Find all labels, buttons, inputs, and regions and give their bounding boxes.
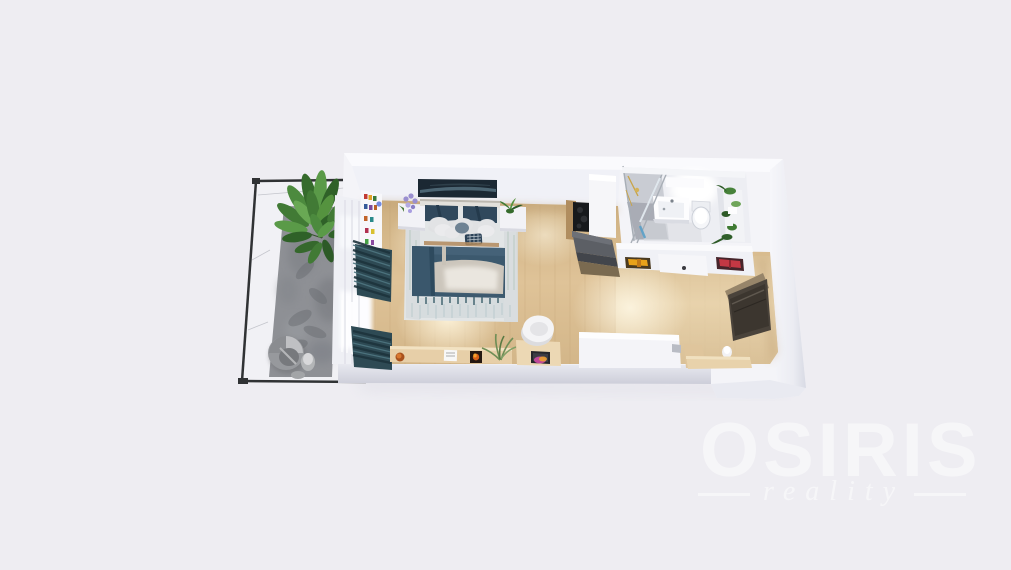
svg-text:reality: reality bbox=[763, 476, 905, 507]
